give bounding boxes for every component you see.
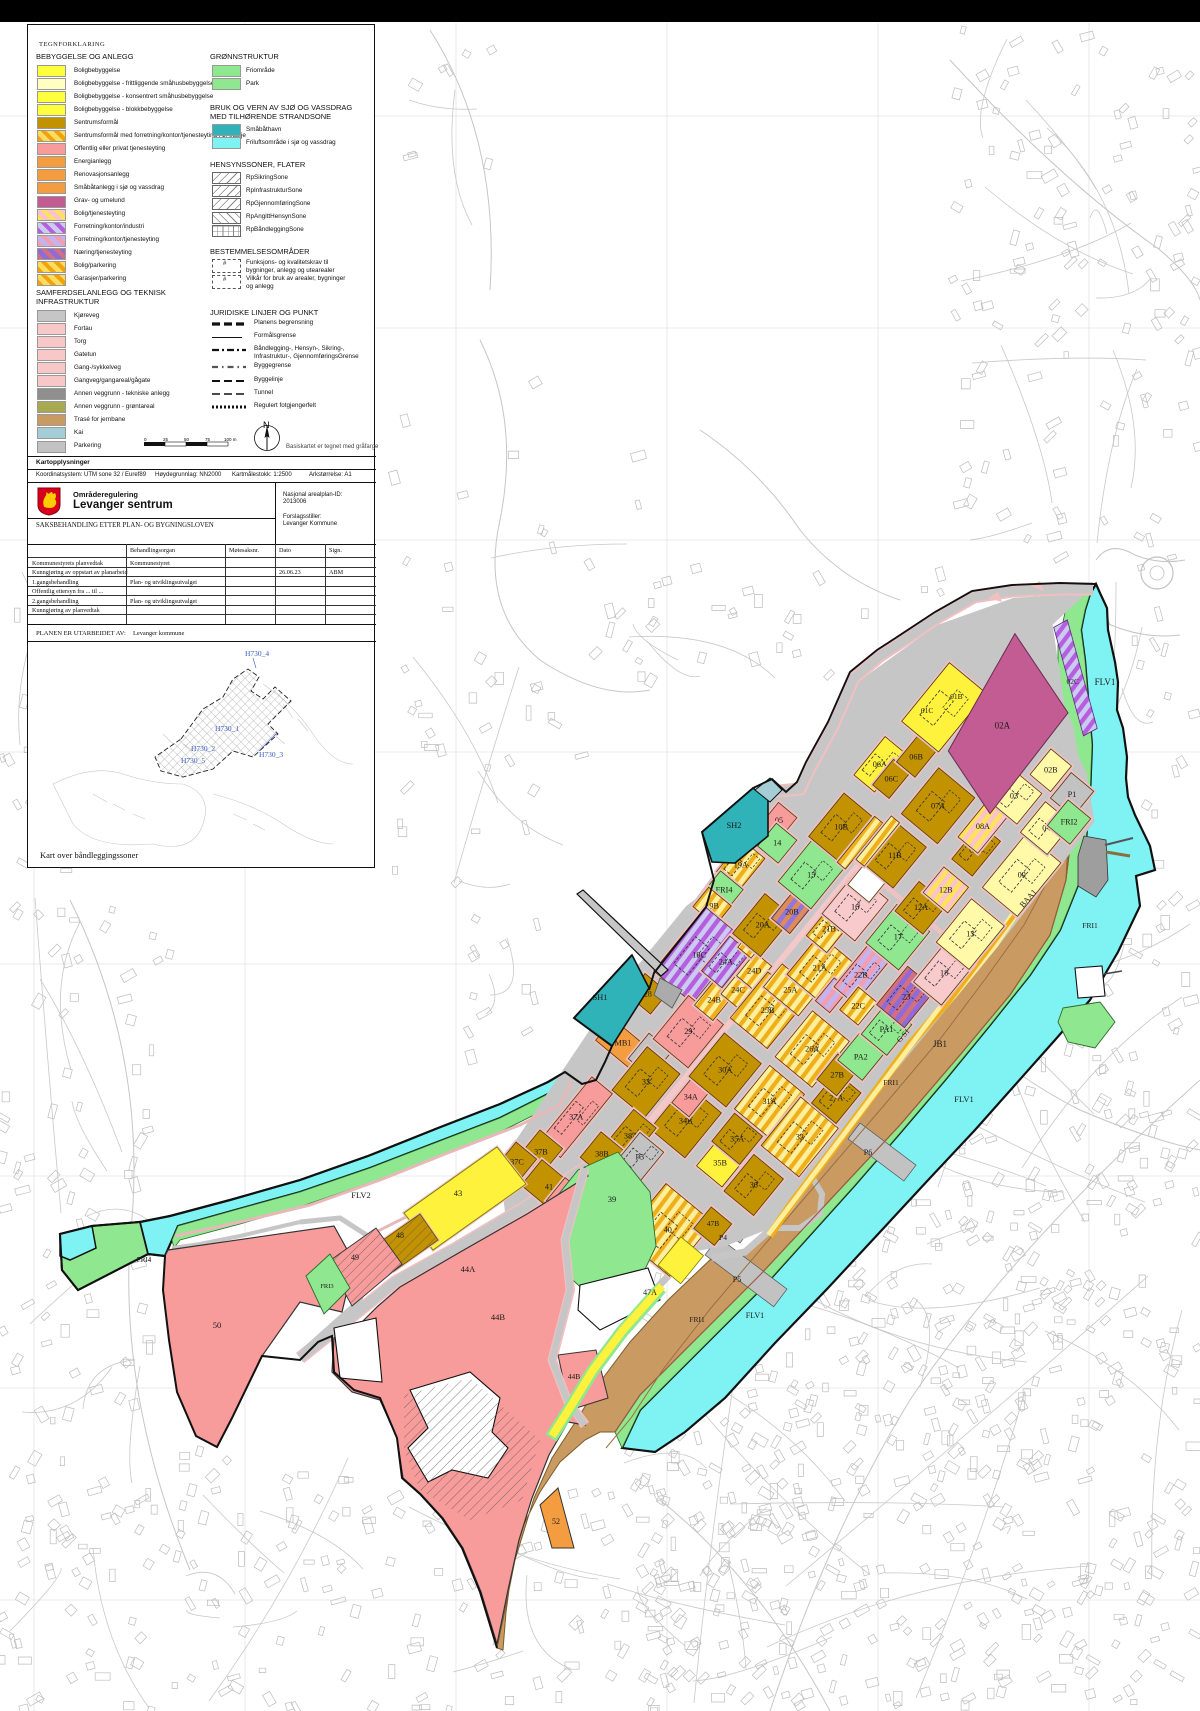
svg-text:44B: 44B xyxy=(491,1312,506,1322)
svg-text:N: N xyxy=(263,420,270,430)
svg-text:P5: P5 xyxy=(733,1275,741,1284)
svg-text:H730_3: H730_3 xyxy=(259,750,283,759)
svg-text:02A: 02A xyxy=(995,720,1011,730)
svg-text:02B: 02B xyxy=(1044,766,1058,775)
svg-text:FRI4: FRI4 xyxy=(137,1256,152,1264)
svg-text:08A: 08A xyxy=(976,822,990,831)
svg-text:100 m: 100 m xyxy=(224,438,237,442)
svg-text:H730_1: H730_1 xyxy=(215,724,239,733)
svg-text:47B: 47B xyxy=(707,1219,720,1228)
svg-text:40: 40 xyxy=(664,1225,672,1234)
svg-text:52: 52 xyxy=(552,1517,560,1526)
svg-text:50: 50 xyxy=(184,438,190,442)
svg-text:07A: 07A xyxy=(931,801,945,810)
svg-text:10B: 10B xyxy=(834,823,848,832)
svg-text:19C: 19C xyxy=(692,951,706,960)
svg-text:37B: 37B xyxy=(534,1148,548,1157)
svg-text:FRI1: FRI1 xyxy=(883,1078,899,1087)
svg-text:30A: 30A xyxy=(718,1065,732,1074)
svg-text:24A: 24A xyxy=(719,958,733,967)
svg-text:02C: 02C xyxy=(1066,677,1079,686)
svg-text:39: 39 xyxy=(608,1194,617,1204)
svg-text:37A: 37A xyxy=(569,1113,583,1122)
svg-text:29: 29 xyxy=(684,1027,692,1036)
svg-text:P6: P6 xyxy=(864,1148,872,1157)
svg-text:P3: P3 xyxy=(635,1153,644,1162)
svg-text:H730_2: H730_2 xyxy=(191,744,215,753)
svg-text:P1: P1 xyxy=(1068,790,1077,799)
svg-text:17: 17 xyxy=(894,933,902,942)
svg-text:PA1: PA1 xyxy=(880,1025,894,1034)
svg-text:SH1: SH1 xyxy=(592,992,607,1002)
svg-text:35A: 35A xyxy=(730,1134,744,1143)
svg-text:FRI3: FRI3 xyxy=(320,1283,333,1290)
svg-text:33: 33 xyxy=(642,1078,650,1087)
svg-text:FRI1: FRI1 xyxy=(1082,921,1098,930)
svg-text:SH2: SH2 xyxy=(726,820,741,830)
svg-text:75: 75 xyxy=(205,438,211,442)
svg-text:H730_5: H730_5 xyxy=(181,756,205,765)
svg-text:PA2: PA2 xyxy=(854,1052,868,1061)
svg-text:JB1: JB1 xyxy=(933,1039,947,1049)
svg-text:FRI2: FRI2 xyxy=(1061,818,1078,827)
svg-text:22C: 22C xyxy=(851,1002,865,1011)
svg-text:36: 36 xyxy=(750,1181,758,1190)
svg-text:21A: 21A xyxy=(813,964,827,973)
svg-text:26A: 26A xyxy=(805,1045,819,1054)
svg-text:27B: 27B xyxy=(830,1070,844,1079)
svg-text:32: 32 xyxy=(796,1132,804,1141)
svg-text:03: 03 xyxy=(1010,792,1018,801)
svg-text:FLV2: FLV2 xyxy=(351,1190,371,1200)
svg-text:20B: 20B xyxy=(785,907,799,916)
svg-text:41: 41 xyxy=(545,1182,553,1191)
svg-text:34A: 34A xyxy=(684,1093,698,1102)
svg-text:24D: 24D xyxy=(747,967,761,976)
svg-text:24C: 24C xyxy=(731,986,745,995)
svg-text:H730_4: H730_4 xyxy=(245,649,269,658)
svg-text:43: 43 xyxy=(454,1188,463,1198)
svg-text:01C: 01C xyxy=(921,706,934,715)
svg-text:01B: 01B xyxy=(950,692,963,701)
svg-text:23: 23 xyxy=(902,993,910,1002)
svg-text:0: 0 xyxy=(144,438,147,442)
svg-text:20A: 20A xyxy=(756,921,770,930)
svg-text:FLV1: FLV1 xyxy=(954,1094,974,1104)
svg-text:35B: 35B xyxy=(713,1159,727,1168)
svg-text:FLV1: FLV1 xyxy=(746,1311,764,1320)
svg-text:44B: 44B xyxy=(568,1372,581,1381)
svg-text:16: 16 xyxy=(851,902,859,911)
svg-text:12B: 12B xyxy=(939,885,953,894)
svg-text:24B: 24B xyxy=(707,996,721,1005)
svg-text:25: 25 xyxy=(163,438,169,442)
svg-text:44A: 44A xyxy=(461,1264,477,1274)
svg-text:25A: 25A xyxy=(783,985,797,994)
svg-text:13: 13 xyxy=(966,930,974,939)
svg-text:09: 09 xyxy=(1018,871,1026,880)
svg-text:FRI1: FRI1 xyxy=(689,1315,705,1324)
svg-text:12A: 12A xyxy=(914,903,928,912)
svg-text:11B: 11B xyxy=(888,851,902,860)
svg-text:06B: 06B xyxy=(909,752,923,761)
svg-text:47A: 47A xyxy=(643,1288,657,1297)
svg-text:48: 48 xyxy=(396,1231,404,1240)
svg-text:14: 14 xyxy=(773,839,781,848)
svg-text:06C: 06C xyxy=(884,774,898,783)
svg-text:P4: P4 xyxy=(719,1233,727,1242)
svg-text:25B: 25B xyxy=(761,1006,775,1015)
svg-text:22B: 22B xyxy=(854,970,868,979)
svg-text:18: 18 xyxy=(940,969,948,978)
svg-text:50: 50 xyxy=(213,1320,222,1330)
svg-text:31A: 31A xyxy=(762,1097,776,1106)
svg-text:49: 49 xyxy=(351,1253,359,1262)
svg-text:15: 15 xyxy=(807,870,815,879)
svg-text:FLV1: FLV1 xyxy=(1095,677,1116,687)
